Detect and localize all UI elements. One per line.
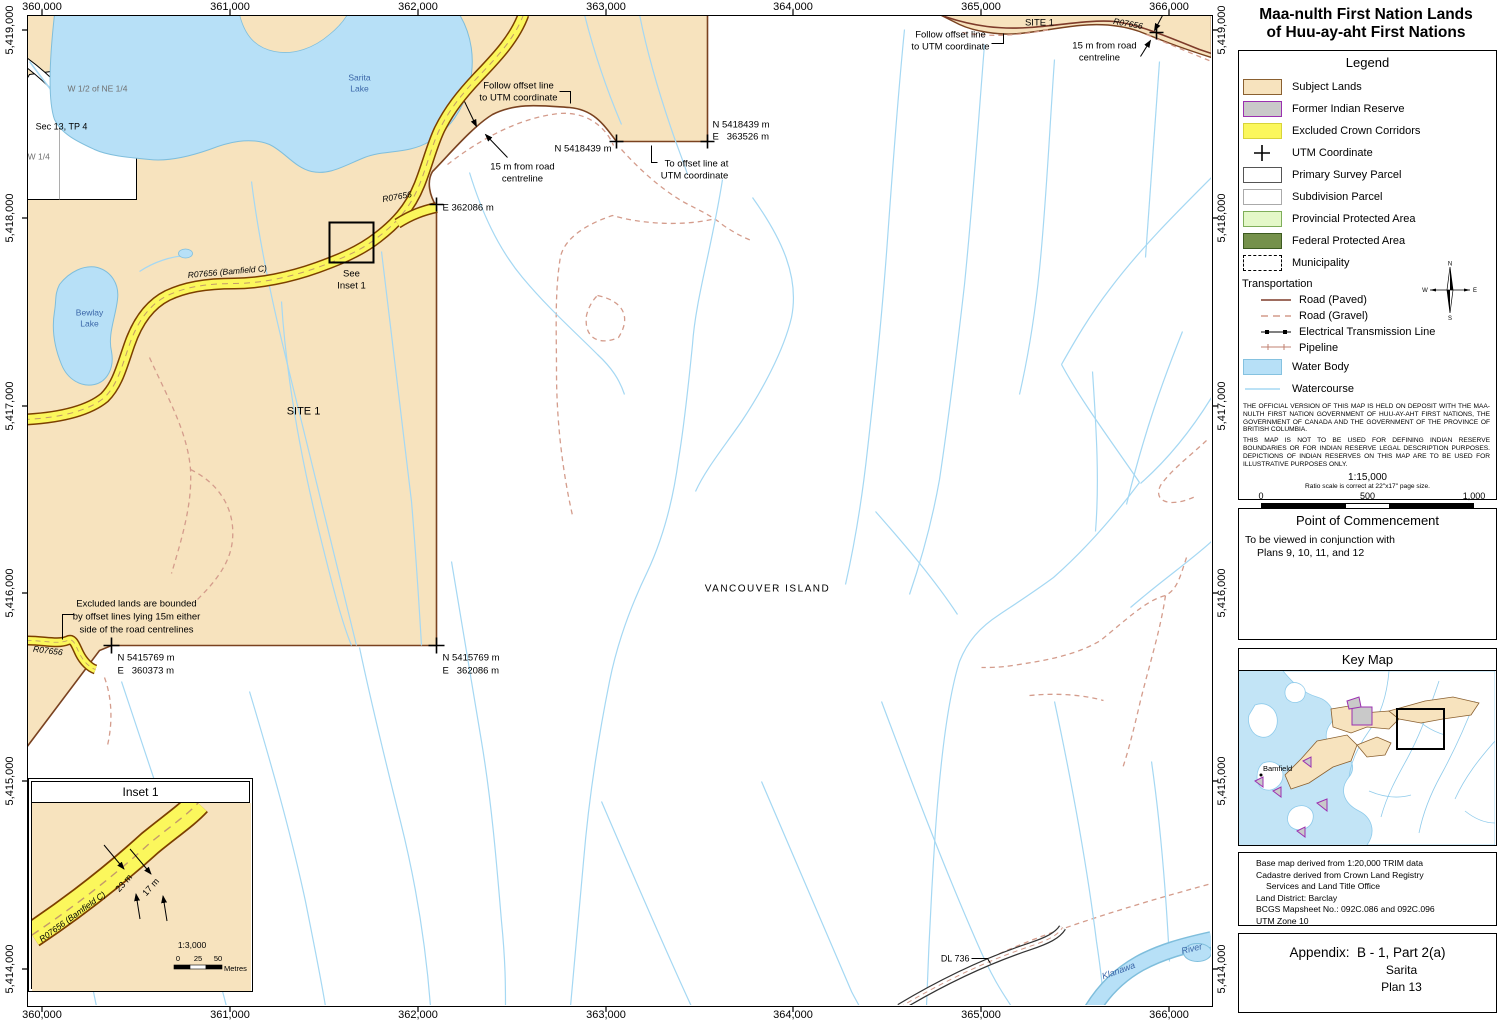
legend-item-electrical-line: Electrical Transmission Line <box>1239 324 1496 340</box>
axis-label-easting: 364,000 <box>773 1 813 13</box>
bamfield-label: Bamfield <box>1263 764 1292 773</box>
axis-label-northing: 5,419,000 <box>1216 6 1228 55</box>
svg-text:50: 50 <box>214 954 222 963</box>
svg-text:side of the road centrelines: side of the road centrelines <box>79 625 193 636</box>
former-reserve-swatch <box>1243 101 1282 117</box>
axis-label-northing: 5,419,000 <box>4 6 16 55</box>
svg-text:N: N <box>1448 262 1452 268</box>
axis-label-easting: 362,000 <box>398 1 438 13</box>
provincial-protected-swatch <box>1243 211 1282 227</box>
pipeline-sample <box>1261 339 1291 357</box>
legend-item-utm-coordinate: UTM Coordinate <box>1239 142 1496 164</box>
legend-item-subdivision-parcel: Subdivision Parcel <box>1239 186 1496 208</box>
axis-label-easting: 361,000 <box>210 1009 250 1021</box>
map-sheet: Sarita Lake Bewlay Lake W 1/2 of NE 1/4 … <box>0 0 1504 1022</box>
legend-title: Legend <box>1239 55 1496 70</box>
appendix-line2: Sarita <box>1273 963 1504 977</box>
svg-text:S: S <box>1448 316 1452 321</box>
svg-text:E 363526 m: E 363526 m <box>713 132 770 143</box>
appendix-panel: Appendix: B - 1, Part 2(a) Sarita Plan 1… <box>1238 933 1497 1013</box>
federal-protected-swatch <box>1243 233 1282 249</box>
axis-label-easting: 365,000 <box>961 1 1001 13</box>
legend-item-watercourse: Watercourse <box>1239 378 1496 400</box>
note-line: Land District: Barclay <box>1256 893 1496 905</box>
axis-label-easting: 364,000 <box>773 1009 813 1021</box>
dl736-corridor <box>900 928 1063 1006</box>
svg-text:Lake: Lake <box>350 84 369 94</box>
to-offset-label: To offset line at <box>665 159 729 170</box>
legend-item-water-body: Water Body <box>1239 356 1496 378</box>
primary-survey-parcel-swatch <box>1243 167 1282 183</box>
inset-1-panel: Inset 1 23 <box>28 778 253 992</box>
axis-label-northing: 5,415,000 <box>4 757 16 806</box>
note-line: Cadastre derived from Crown Land Registr… <box>1256 870 1496 882</box>
vancouver-island-label: VANCOUVER ISLAND <box>705 584 831 595</box>
key-map: Bamfield <box>1239 671 1495 845</box>
axis-label-northing: 5,418,000 <box>1216 194 1228 243</box>
dl736-label: DL 736 <box>941 954 970 964</box>
offset15-right-label: 15 m from road <box>1072 41 1136 52</box>
svg-text:UTM coordinate: UTM coordinate <box>661 171 729 182</box>
legend-item-primary-survey-parcel: Primary Survey Parcel <box>1239 164 1496 186</box>
axis-label-easting: 365,000 <box>961 1009 1001 1021</box>
svg-text:E 360373 m: E 360373 m <box>118 666 175 677</box>
svg-text:W: W <box>1422 288 1428 294</box>
see-inset-label: See <box>343 269 360 280</box>
parcel-nw-label: NW 1/4 <box>28 152 50 162</box>
poc-title: Point of Commencement <box>1239 509 1496 528</box>
axis-label-northing: 5,415,000 <box>1216 757 1228 806</box>
notes-panel: Base map derived from 1:20,000 TRIM data… <box>1238 852 1497 926</box>
svg-text:E: E <box>1473 288 1477 294</box>
axis-label-northing: 5,416,000 <box>4 569 16 618</box>
legend-item-former-reserve: Former Indian Reserve <box>1239 98 1496 120</box>
coord-n5418439-label: N 5418439 m <box>554 144 611 155</box>
axis-label-easting: 362,000 <box>398 1009 438 1021</box>
axis-label-northing: 5,417,000 <box>1216 382 1228 431</box>
svg-text:to UTM coordinate: to UTM coordinate <box>479 93 557 104</box>
inset-map: 23 m 17 m R07656 (Bamfield C) 1:3,000 0 … <box>32 803 251 991</box>
note-line: Services and Land Title Office <box>1256 881 1496 893</box>
svg-text:centreline: centreline <box>502 174 543 185</box>
appendix-line1: Appendix: B - 1, Part 2(a) <box>1239 945 1496 960</box>
axis-label-easting: 360,000 <box>22 1 62 13</box>
note-line: UTM Zone 10 <box>1256 916 1496 928</box>
poc-body: To be viewed in conjunction with Plans 9… <box>1239 528 1496 560</box>
axis-label-easting: 366,000 <box>1149 1 1189 13</box>
follow-offset-center-label: Follow offset line <box>483 81 554 92</box>
axis-label-northing: 5,416,000 <box>1216 569 1228 618</box>
coord-e362086-label: E 362086 m <box>443 203 494 214</box>
legend-item-excluded-corridors: Excluded Crown Corridors <box>1239 120 1496 142</box>
sarita-lake-label: Sarita <box>348 73 370 83</box>
inset-title: Inset 1 <box>32 782 249 803</box>
inset-scale-unit: Metres <box>224 964 247 973</box>
svg-text:0: 0 <box>176 954 180 963</box>
note-line: Base map derived from 1:20,000 TRIM data <box>1256 858 1496 870</box>
inset-scale-ratio: 1:3,000 <box>178 940 207 950</box>
axis-label-northing: 5,417,000 <box>4 382 16 431</box>
coord-ne-top-label: N 5418439 m <box>713 120 770 131</box>
svg-text:to UTM coordinate: to UTM coordinate <box>911 42 989 53</box>
note-line: BCGS Mapsheet No.: 092C.086 and 092C.096 <box>1256 904 1496 916</box>
axis-label-northing: 5,418,000 <box>4 194 16 243</box>
scale-note: Ratio scale is correct at 22"x17" page s… <box>1239 483 1496 490</box>
svg-text:centreline: centreline <box>1079 53 1120 64</box>
excluded-corridors-swatch <box>1243 123 1282 139</box>
svg-text:Inset 1: Inset 1 <box>337 281 366 292</box>
utm-coordinate-icon <box>1243 145 1282 161</box>
scale-ratio: 1:15,000 <box>1239 472 1496 483</box>
disclaimer-not-for-boundaries: THIS MAP IS NOT TO BE USED FOR DEFINING … <box>1243 437 1490 468</box>
svg-text:by offset lines lying 15m eith: by offset lines lying 15m either <box>73 612 201 623</box>
sheet-title: Maa-nulth First Nation Lands of Huu-ay-a… <box>1232 6 1500 42</box>
excluded-note-label: Excluded lands are bounded <box>76 599 196 610</box>
appendix-line3: Plan 13 <box>1273 980 1504 994</box>
key-map-title: Key Map <box>1239 649 1496 671</box>
svg-text:Lake: Lake <box>80 319 99 329</box>
compass-rose-icon: N S W E <box>1422 259 1478 326</box>
bewlay-lake-label: Bewlay <box>76 308 104 318</box>
water-body-swatch <box>1243 359 1282 375</box>
inset-scale-bar <box>174 965 222 969</box>
subject-lands-swatch <box>1243 79 1282 95</box>
axis-label-northing: 5,414,000 <box>1216 945 1228 994</box>
svg-text:25: 25 <box>194 954 202 963</box>
legend-item-pipeline: Pipeline <box>1239 340 1496 356</box>
axis-label-easting: 360,000 <box>22 1009 62 1021</box>
legend-panel: Legend Subject Lands Former Indian Reser… <box>1238 50 1497 500</box>
site1-top-label: SITE 1 <box>1025 18 1054 29</box>
disclaimer-official-version: THE OFFICIAL VERSION OF THIS MAP IS HELD… <box>1243 403 1490 434</box>
legend-item-subject-lands: Subject Lands <box>1239 76 1496 98</box>
key-map-panel: Key Map <box>1238 648 1497 846</box>
coord-se-label: N 5415769 m <box>443 653 500 664</box>
parcel-sec-label: Sec 13, TP 4 <box>36 122 88 132</box>
site1-main-label: SITE 1 <box>287 406 321 418</box>
follow-offset-right-label: Follow offset line <box>915 30 986 41</box>
axis-label-easting: 363,000 <box>586 1009 626 1021</box>
axis-label-northing: 5,414,000 <box>4 945 16 994</box>
offset15-center-label: 15 m from road <box>490 162 554 173</box>
point-of-commencement-panel: Point of Commencement To be viewed in co… <box>1238 508 1497 640</box>
coord-sw-label: N 5415769 m <box>118 653 175 664</box>
watercourse-sample <box>1243 381 1282 397</box>
subdivision-parcel-swatch <box>1243 189 1282 205</box>
axis-label-easting: 363,000 <box>586 1 626 13</box>
axis-label-easting: 361,000 <box>210 1 250 13</box>
parcel-w-half-label: W 1/2 of NE 1/4 <box>68 84 128 94</box>
legend-item-federal-protected: Federal Protected Area <box>1239 230 1496 252</box>
axis-label-easting: 366,000 <box>1149 1009 1189 1021</box>
municipality-swatch <box>1243 255 1282 271</box>
legend-item-provincial-protected: Provincial Protected Area <box>1239 208 1496 230</box>
svg-text:E 362086 m: E 362086 m <box>443 666 500 677</box>
